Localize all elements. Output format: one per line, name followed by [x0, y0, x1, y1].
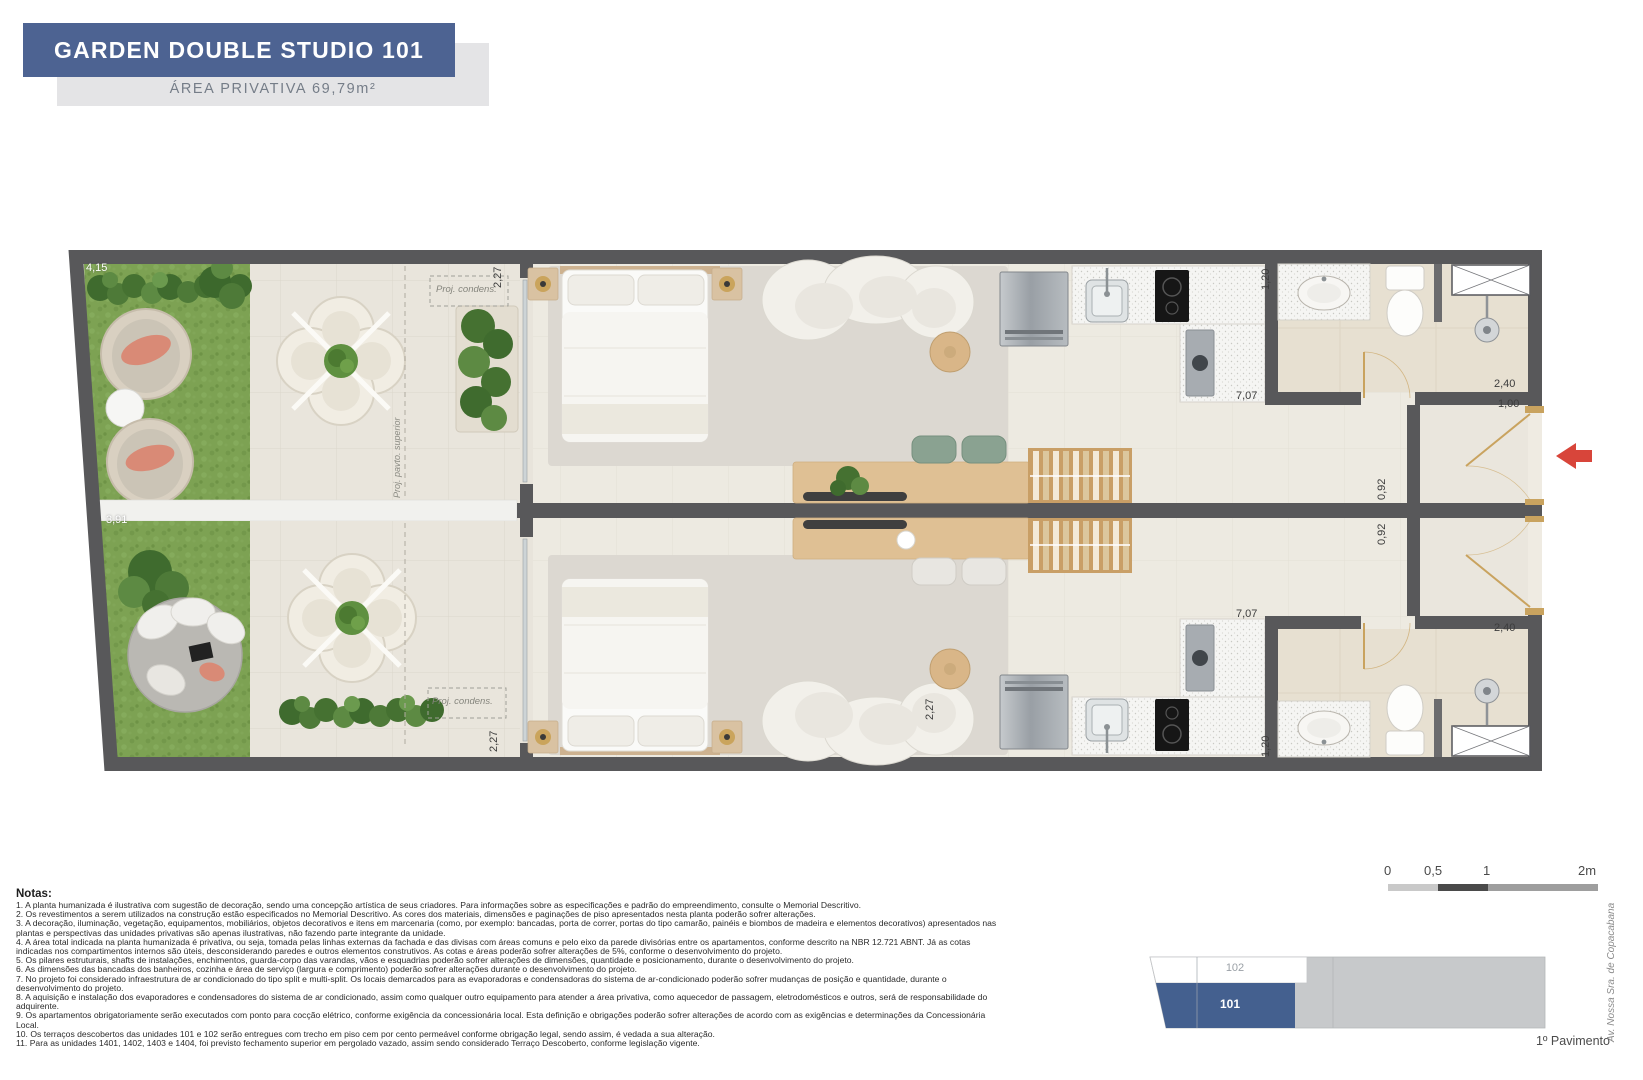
note-item: 9. Os apartamentos obrigatoriamente serã… [16, 1011, 1008, 1029]
scale-tick-0: 0 [1384, 863, 1391, 878]
dim-2-40-bottom: 2,40 [1494, 622, 1515, 634]
dim-4-15: 4,15 [86, 262, 107, 274]
proj-pavto-superior-label: Proj. pavto. superior [391, 417, 403, 498]
dim-2-40-top: 2,40 [1494, 378, 1515, 390]
divider-wall [517, 503, 1542, 518]
note-item: 8. A aquisição e instalação dos evaporad… [16, 993, 1008, 1011]
note-item: 7. No projeto foi considerado infraestru… [16, 975, 1008, 993]
dim-7-07-bottom: 7,07 [1236, 608, 1257, 620]
keyplan-unit-102: 102 [1160, 962, 1310, 974]
proj-condens-label-top: Proj. condens. [436, 284, 497, 295]
dim-7-07-top: 7,07 [1236, 390, 1257, 402]
scale-tick-05: 0,5 [1424, 863, 1442, 878]
keyplan-unit-101: 101 [1160, 997, 1300, 1011]
dim-2-27-bottom1: 2,27 [488, 731, 500, 752]
dim-1-20-top: 1,20 [1260, 269, 1272, 290]
note-item: 3. A decoração, iluminação, vegetação, e… [16, 919, 1008, 937]
dim-1-00: 1,00 [1498, 398, 1519, 410]
note-item: 4. A área total indicada na planta human… [16, 938, 1008, 956]
note-item: 11. Para as unidades 1401, 1402, 1403 e … [16, 1039, 1008, 1048]
street-label: Av. Nossa Sra. de Copacabana [1606, 903, 1618, 1042]
page: { "header": { "title": "GARDEN DOUBLE ST… [0, 0, 1643, 1080]
proj-condens-label-bottom: Proj. condens. [432, 696, 493, 707]
entry-arrow-icon [1556, 443, 1592, 469]
notes-title: Notas: [16, 888, 1008, 900]
scale-tick-1: 1 [1483, 863, 1490, 878]
dim-1-20-bottom: 1,20 [1260, 736, 1272, 757]
garden-bottom-terrace [90, 500, 520, 757]
scale-bar [1388, 884, 1598, 891]
keyplan-floor-label: 1º Pavimento [1498, 1034, 1610, 1048]
dim-0-92-top: 0,92 [1376, 479, 1388, 500]
dim-0-92-bottom: 0,92 [1376, 524, 1388, 545]
dim-3-91: 3,91 [106, 514, 127, 526]
dim-2-27-bottom2: 2,27 [924, 699, 936, 720]
notes-block: Notas: 1. A planta humanizada é ilustrat… [16, 888, 1008, 1048]
scale-tick-2m: 2m [1578, 863, 1596, 878]
